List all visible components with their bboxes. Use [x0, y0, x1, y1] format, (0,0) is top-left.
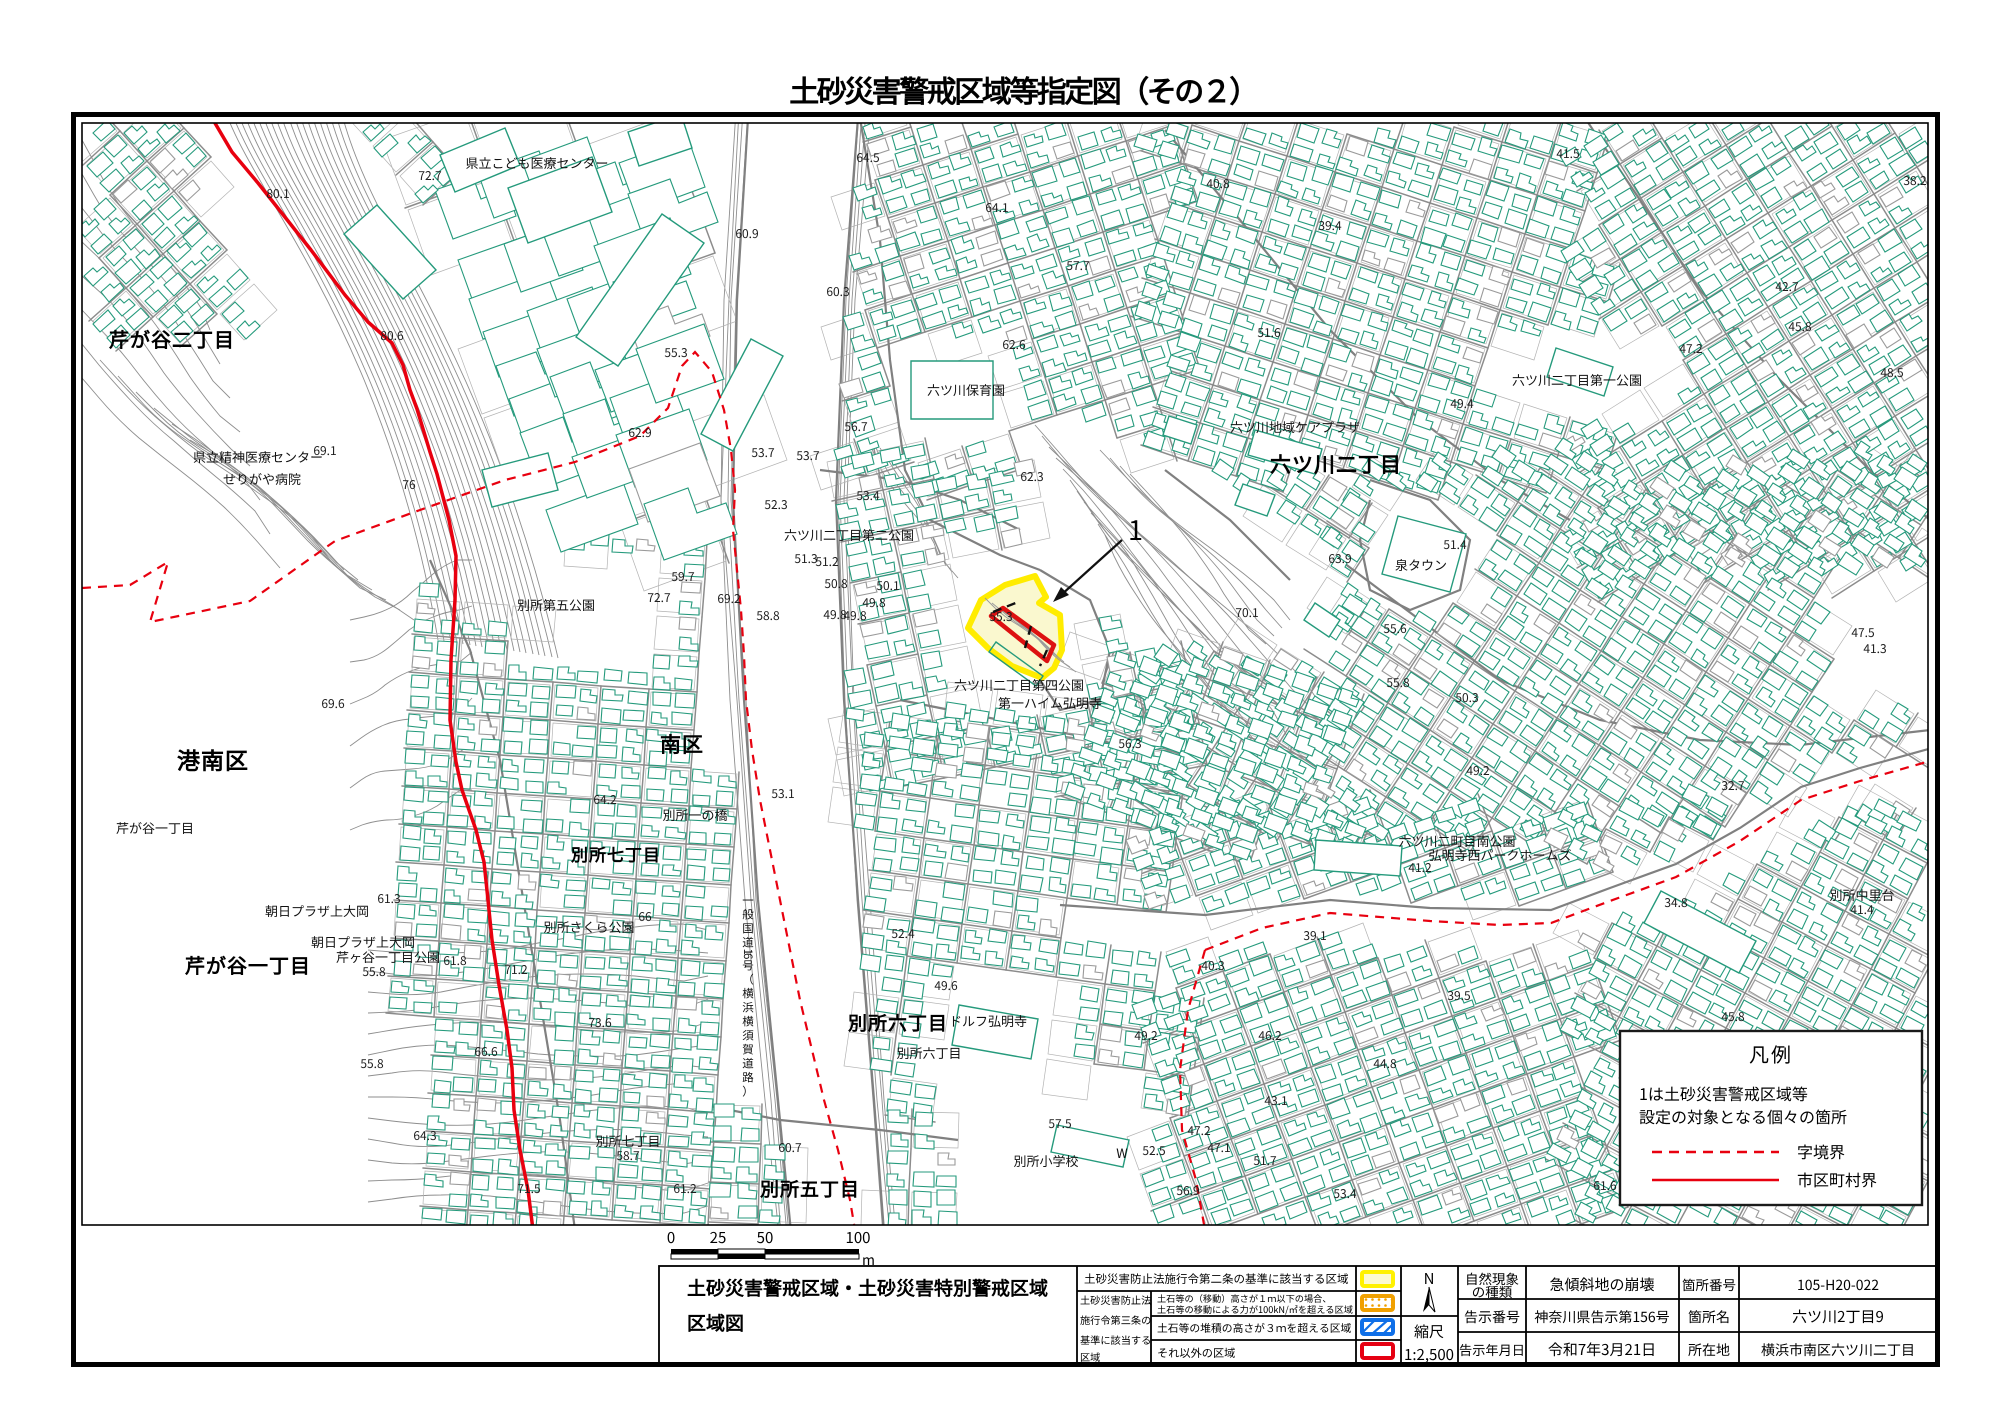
svg-text:45.8: 45.8: [1721, 1008, 1745, 1025]
svg-text:56.9: 56.9: [1176, 1182, 1199, 1199]
svg-text:の種類: の種類: [1472, 1281, 1513, 1301]
svg-text:一般国道16号（横浜横須賀道路）: 一般国道16号（横浜横須賀道路）: [740, 893, 756, 1098]
svg-text:区域図: 区域図: [687, 1309, 744, 1336]
svg-text:69.6: 69.6: [321, 695, 345, 712]
svg-text:62.3: 62.3: [1020, 468, 1043, 485]
svg-text:ドルフ弘明寺: ドルフ弘明寺: [949, 1011, 1027, 1030]
svg-text:64.1: 64.1: [985, 199, 1008, 216]
svg-text:六ツ川二丁目第四公園: 六ツ川二丁目第四公園: [954, 675, 1084, 694]
svg-text:40.8: 40.8: [1206, 175, 1230, 192]
svg-text:1は土砂災害警戒区域等: 1は土砂災害警戒区域等: [1639, 1081, 1808, 1105]
svg-text:1:2,500: 1:2,500: [1404, 1344, 1454, 1365]
svg-text:W: W: [1116, 1143, 1128, 1162]
svg-text:41.2: 41.2: [1408, 859, 1432, 876]
svg-text:49.2: 49.2: [1134, 1027, 1158, 1044]
svg-text:51.7: 51.7: [1253, 1152, 1277, 1169]
svg-text:区域: 区域: [1080, 1349, 1100, 1364]
svg-text:別所第五公園: 別所第五公園: [517, 595, 595, 614]
svg-text:50.8: 50.8: [824, 575, 848, 592]
svg-text:57.5: 57.5: [1048, 1115, 1072, 1132]
svg-text:51.2: 51.2: [815, 553, 839, 570]
svg-text:それ以外の区域: それ以外の区域: [1157, 1345, 1235, 1361]
svg-text:市区町村界: 市区町村界: [1797, 1167, 1877, 1191]
svg-text:泉タウン: 泉タウン: [1395, 555, 1447, 574]
svg-text:57.7: 57.7: [1066, 257, 1090, 274]
svg-text:別所七丁目: 別所七丁目: [570, 841, 661, 866]
svg-text:m: m: [862, 1250, 875, 1270]
svg-text:51.4: 51.4: [1443, 536, 1467, 553]
svg-text:53.4: 53.4: [856, 487, 880, 504]
svg-text:基準に該当する: 基準に該当する: [1080, 1332, 1151, 1347]
svg-text:字境界: 字境界: [1797, 1139, 1845, 1163]
svg-text:61.6: 61.6: [1593, 1177, 1617, 1194]
svg-text:32.7: 32.7: [1721, 777, 1745, 794]
svg-text:56.3: 56.3: [1118, 735, 1141, 752]
svg-text:48.5: 48.5: [1880, 364, 1904, 381]
svg-text:50: 50: [757, 1227, 774, 1248]
svg-text:朝日プラザ上大岡: 朝日プラザ上大岡: [265, 901, 369, 920]
svg-text:凡例: 凡例: [1749, 1039, 1793, 1068]
svg-text:55.3: 55.3: [989, 608, 1012, 625]
svg-text:箇所番号: 箇所番号: [1682, 1274, 1736, 1294]
svg-text:62.6: 62.6: [1002, 336, 1026, 353]
svg-text:六ツ川地域ケアプラザ: 六ツ川地域ケアプラザ: [1230, 417, 1360, 436]
svg-text:58.8: 58.8: [756, 607, 780, 624]
svg-text:芹が谷二丁目: 芹が谷二丁目: [108, 324, 235, 353]
svg-text:47.2: 47.2: [1187, 1122, 1211, 1139]
svg-text:令和7年3月21日: 令和7年3月21日: [1548, 1339, 1656, 1360]
svg-text:72.7: 72.7: [418, 167, 442, 184]
svg-text:横浜市南区六ツ川二丁目: 横浜市南区六ツ川二丁目: [1761, 1340, 1915, 1360]
svg-text:46.2: 46.2: [1258, 1027, 1282, 1044]
svg-text:49.6: 49.6: [934, 977, 958, 994]
svg-text:縮尺: 縮尺: [1414, 1321, 1444, 1342]
svg-text:49.4: 49.4: [1450, 395, 1474, 412]
svg-text:39.5: 39.5: [1447, 987, 1471, 1004]
svg-text:六ツ川保育園: 六ツ川保育園: [927, 380, 1005, 399]
svg-text:施行令第三条の: 施行令第三条の: [1080, 1312, 1151, 1327]
svg-text:100: 100: [846, 1227, 871, 1248]
svg-text:47.5: 47.5: [1851, 624, 1875, 641]
svg-text:69.2: 69.2: [717, 590, 741, 607]
svg-text:38.2: 38.2: [1903, 172, 1927, 189]
svg-text:80.1: 80.1: [266, 185, 289, 202]
svg-text:44.8: 44.8: [1373, 1055, 1397, 1072]
svg-text:南区: 南区: [660, 729, 704, 759]
svg-text:63.9: 63.9: [1328, 550, 1351, 567]
svg-text:39.4: 39.4: [1318, 217, 1342, 234]
svg-text:53.1: 53.1: [771, 785, 794, 802]
svg-text:所在地: 所在地: [1688, 1340, 1730, 1360]
svg-text:49.8: 49.8: [843, 607, 867, 624]
svg-text:箇所名: 箇所名: [1688, 1307, 1730, 1327]
svg-text:0: 0: [667, 1227, 675, 1248]
svg-text:県立精神医療センター: 県立精神医療センター: [193, 447, 323, 466]
svg-text:六ツ川二丁目: 六ツ川二丁目: [1270, 449, 1402, 479]
svg-text:66: 66: [638, 908, 652, 925]
svg-text:別所さくら公園: 別所さくら公園: [543, 917, 634, 936]
svg-text:43.1: 43.1: [1264, 1092, 1287, 1109]
svg-text:神奈川県告示第156号: 神奈川県告示第156号: [1534, 1307, 1669, 1327]
svg-text:64.2: 64.2: [593, 791, 617, 808]
svg-text:弘明寺西パークホームズ: 弘明寺西パークホームズ: [1428, 845, 1571, 864]
svg-text:51.6: 51.6: [1257, 324, 1281, 341]
svg-text:55.8: 55.8: [360, 1055, 384, 1072]
svg-text:別所六丁目: 別所六丁目: [848, 1009, 948, 1036]
svg-text:別所六丁目: 別所六丁目: [896, 1043, 961, 1062]
svg-text:41.4: 41.4: [1850, 901, 1874, 918]
svg-text:六ツ川2丁目9: 六ツ川2丁目9: [1792, 1306, 1884, 1327]
svg-text:60.9: 60.9: [735, 225, 758, 242]
svg-text:港南区: 港南区: [177, 742, 249, 776]
svg-text:70.1: 70.1: [1235, 604, 1258, 621]
svg-text:71.2: 71.2: [504, 961, 528, 978]
svg-text:土砂災害防止法: 土砂災害防止法: [1080, 1292, 1151, 1307]
svg-text:71.5: 71.5: [517, 1180, 541, 1197]
svg-text:土砂災害防止法施行令第二条の基準に該当する区域: 土砂災害防止法施行令第二条の基準に該当する区域: [1084, 1271, 1349, 1287]
svg-text:別所小学校: 別所小学校: [1013, 1151, 1078, 1170]
svg-text:80.6: 80.6: [380, 327, 404, 344]
svg-text:告示番号: 告示番号: [1464, 1307, 1520, 1327]
svg-text:53.7: 53.7: [751, 444, 775, 461]
svg-text:64.3: 64.3: [413, 1127, 436, 1144]
svg-text:告示年月日: 告示年月日: [1459, 1340, 1525, 1359]
svg-text:芹ヶ谷一丁目公園: 芹ヶ谷一丁目公園: [336, 947, 440, 966]
svg-text:52.5: 52.5: [1142, 1142, 1166, 1159]
svg-text:73.6: 73.6: [588, 1014, 612, 1031]
svg-text:61.8: 61.8: [443, 952, 467, 969]
svg-text:41.3: 41.3: [1863, 640, 1886, 657]
svg-text:45.8: 45.8: [1788, 318, 1812, 335]
svg-text:52.4: 52.4: [891, 925, 915, 942]
svg-text:61.2: 61.2: [673, 1180, 697, 1197]
svg-text:55.8: 55.8: [1386, 674, 1410, 691]
svg-text:六ツ川二丁目第二公園: 六ツ川二丁目第二公園: [784, 525, 914, 544]
svg-text:66.6: 66.6: [474, 1043, 498, 1060]
svg-text:土砂災害警戒区域・土砂災害特別警戒区域: 土砂災害警戒区域・土砂災害特別警戒区域: [687, 1274, 1048, 1301]
svg-text:105-H20-022: 105-H20-022: [1797, 1275, 1879, 1295]
svg-text:39.1: 39.1: [1303, 927, 1326, 944]
svg-text:県立こども医療センター: 県立こども医療センター: [465, 153, 608, 172]
svg-text:47.1: 47.1: [1207, 1139, 1230, 1156]
svg-text:第一ハイム弘明寺: 第一ハイム弘明寺: [998, 693, 1102, 712]
svg-text:土砂災害警戒区域等指定図（その２）: 土砂災害警戒区域等指定図（その２）: [789, 67, 1257, 111]
svg-text:急傾斜地の崩壊: 急傾斜地の崩壊: [1549, 1274, 1654, 1295]
svg-text:51.3: 51.3: [794, 550, 817, 567]
svg-text:芹が谷一丁目: 芹が谷一丁目: [184, 950, 311, 979]
svg-text:53.4: 53.4: [1333, 1185, 1357, 1202]
svg-text:土石等の堆積の高さが３ｍを超える区域: 土石等の堆積の高さが３ｍを超える区域: [1157, 1320, 1352, 1336]
svg-text:42.7: 42.7: [1775, 278, 1799, 295]
svg-text:土石等の移動による力が100kN/㎡を超える区域: 土石等の移動による力が100kN/㎡を超える区域: [1157, 1302, 1353, 1316]
svg-text:64.5: 64.5: [856, 149, 880, 166]
svg-text:1: 1: [1128, 509, 1143, 548]
svg-text:61.3: 61.3: [377, 890, 400, 907]
svg-text:60.7: 60.7: [778, 1139, 802, 1156]
svg-text:六ツ川二丁目第一公園: 六ツ川二丁目第一公園: [1512, 370, 1642, 389]
svg-text:59.7: 59.7: [671, 568, 695, 585]
svg-text:40.3: 40.3: [1201, 957, 1224, 974]
svg-text:41.5: 41.5: [1556, 145, 1580, 162]
svg-text:58.7: 58.7: [616, 1147, 640, 1164]
svg-text:50.3: 50.3: [1455, 689, 1478, 706]
svg-text:55.6: 55.6: [1383, 620, 1407, 637]
svg-text:34.8: 34.8: [1664, 894, 1688, 911]
svg-text:49.2: 49.2: [1466, 762, 1490, 779]
svg-text:56.7: 56.7: [844, 418, 868, 435]
svg-text:芹が谷一丁目: 芹が谷一丁目: [116, 818, 194, 837]
svg-text:69.1: 69.1: [313, 442, 336, 459]
svg-text:47.2: 47.2: [1679, 340, 1703, 357]
svg-text:50.1: 50.1: [876, 577, 899, 594]
svg-text:設定の対象となる個々の箇所: 設定の対象となる個々の箇所: [1639, 1104, 1847, 1128]
svg-text:55.8: 55.8: [362, 963, 386, 980]
svg-text:せりがや病院: せりがや病院: [223, 469, 301, 488]
svg-text:別所五丁目: 別所五丁目: [760, 1175, 860, 1202]
svg-text:53.7: 53.7: [796, 447, 820, 464]
svg-text:55.3: 55.3: [664, 344, 687, 361]
svg-text:62.9: 62.9: [628, 424, 651, 441]
svg-text:60.3: 60.3: [826, 283, 849, 300]
svg-text:別所一の橋: 別所一の橋: [662, 805, 727, 824]
svg-text:N: N: [1424, 1268, 1435, 1289]
svg-text:72.7: 72.7: [647, 589, 671, 606]
svg-text:25: 25: [710, 1227, 727, 1248]
svg-text:52.3: 52.3: [764, 496, 787, 513]
svg-text:76: 76: [402, 476, 416, 493]
